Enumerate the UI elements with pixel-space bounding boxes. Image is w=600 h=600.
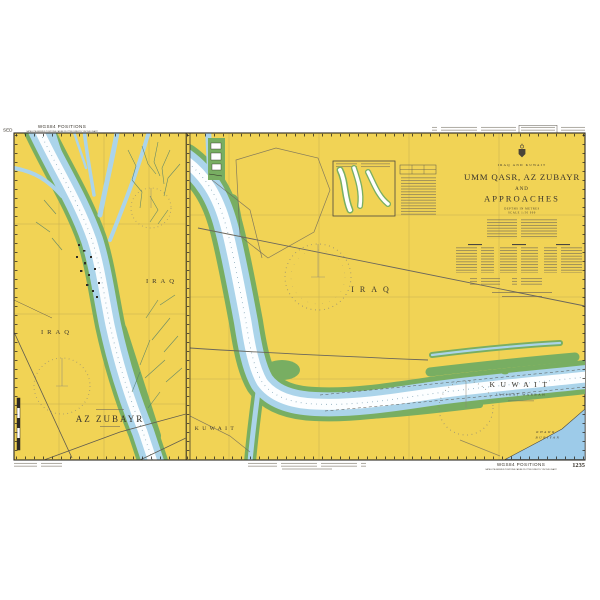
wgs-top-label: WGS84 POSITIONS [38,124,86,129]
notes-col1-header [468,244,482,245]
notes-footer-line2 [502,296,542,297]
notes-col1-lines [456,247,494,273]
bottom-center-note-line2 [282,469,332,470]
label-kuwait-small: KUWAIT [195,426,237,432]
inset-title-rule-bottom [100,426,120,427]
title-line2: AND [515,187,529,192]
label-kuwait-large: KUWAIT [490,380,553,389]
nautical-chart-sheet: SED WGS84 POSITIONS SATELLITE-DERIVED PO… [0,0,600,600]
title-line1: UMM QASR, AZ ZUBAYR [464,172,580,182]
label-iraq-east: IRAQ [146,278,178,285]
label-iraq-main: IRAQ [351,285,395,294]
notes-col3-lines [544,247,582,273]
bottom-margin: WGS84 POSITIONS SATELLITE-DERIVED POSITI… [14,462,585,471]
title-paragraph-lines [487,218,557,239]
umm-qasr-port [208,138,225,180]
inset-title-rule-top [96,409,124,410]
fold-label: SED [3,128,13,133]
notes-col3-header [556,244,570,245]
continuation-inset [333,161,395,216]
notes-footer-line1 [492,292,552,293]
notes-col2-lines [500,247,538,273]
bottom-left-note-lines [14,463,62,468]
notes-sub2-lines [512,278,542,286]
source-diagram-lines [521,126,555,133]
label-iraq-west: IRAQ [41,329,73,336]
sea-label-line2: BUBIYAN [536,435,561,439]
bottom-center-note-lines [248,462,366,467]
title-region: IRAQ AND KUWAIT [498,163,547,167]
wgs-top-subnote: SATELLITE-DERIVED POSITIONS CAN BE PLOTT… [26,130,98,133]
title-scale-note: SCALE 1:50 000 [508,212,536,215]
inset-title-az-zubayr: AZ ZUBAYR [76,414,144,424]
notes-col2-header [512,244,526,245]
sea-label-line1: KHAWR [535,430,556,434]
chart-number: 1235 [572,462,585,469]
wgs-bottom-subnote: SATELLITE-DERIVED POSITIONS CAN BE PLOTT… [485,468,557,471]
top-margin: SED WGS84 POSITIONS SATELLITE-DERIVED PO… [3,124,585,134]
notes-sub1-lines [470,278,500,286]
kuwait-sub-note-line [508,401,534,402]
wgs-bottom-label: WGS84 POSITIONS [497,462,545,467]
label-kuwait-sub: JAZIRAT WARBAH [496,393,546,397]
title-line3: APPROACHES [484,194,560,204]
title-depths-note: DEPTHS IN METRES [504,208,540,211]
chart-canvas: SED WGS84 POSITIONS SATELLITE-DERIVED PO… [0,0,600,600]
